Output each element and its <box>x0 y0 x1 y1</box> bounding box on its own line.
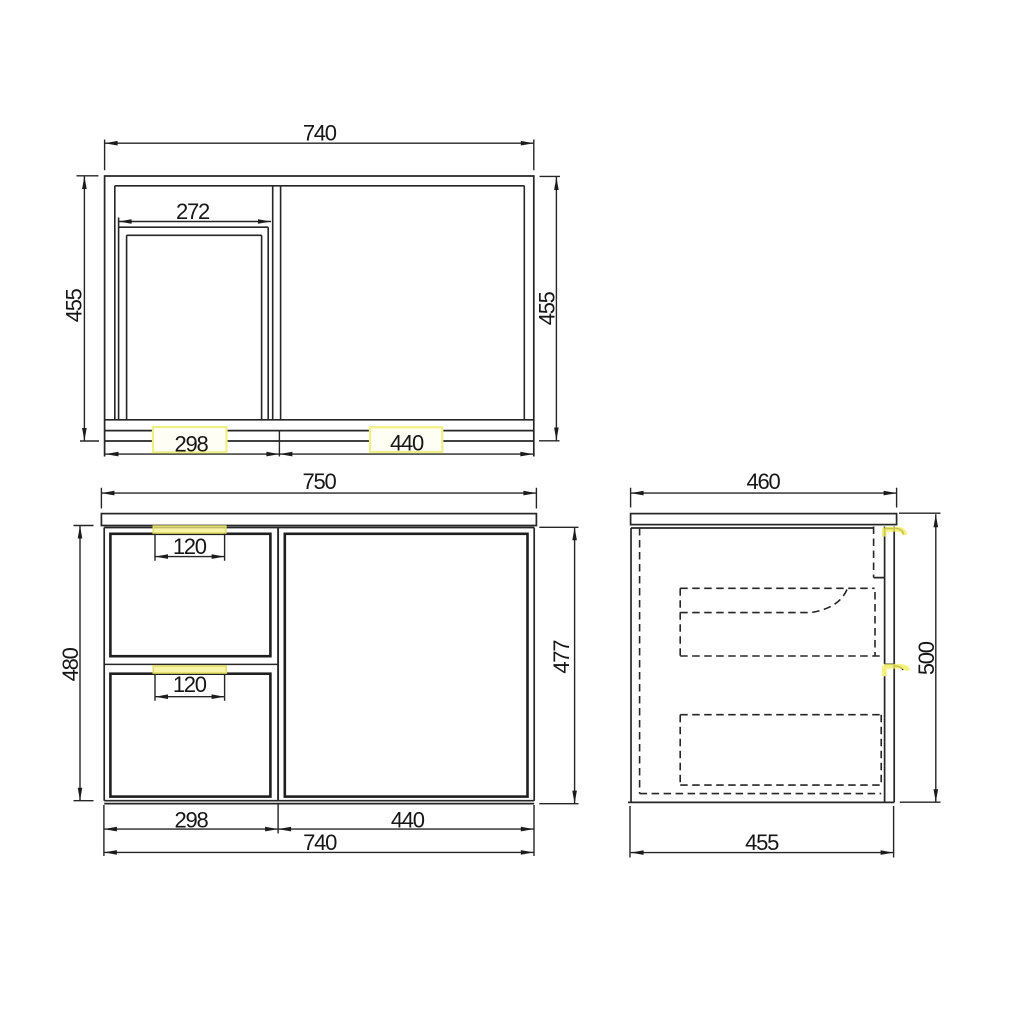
svg-text:440: 440 <box>391 808 425 833</box>
svg-text:120: 120 <box>173 534 207 559</box>
svg-text:500: 500 <box>914 641 939 675</box>
svg-text:455: 455 <box>535 291 560 325</box>
svg-text:480: 480 <box>58 647 83 681</box>
svg-text:455: 455 <box>61 288 86 322</box>
svg-text:740: 740 <box>303 121 337 146</box>
svg-text:272: 272 <box>176 199 210 224</box>
svg-text:298: 298 <box>175 432 209 457</box>
svg-text:440: 440 <box>390 430 424 455</box>
svg-text:298: 298 <box>175 808 209 833</box>
svg-text:460: 460 <box>747 469 781 494</box>
svg-text:120: 120 <box>173 672 207 697</box>
svg-text:740: 740 <box>303 830 337 855</box>
svg-text:750: 750 <box>303 469 337 494</box>
svg-text:455: 455 <box>745 830 779 855</box>
svg-text:477: 477 <box>549 640 574 674</box>
